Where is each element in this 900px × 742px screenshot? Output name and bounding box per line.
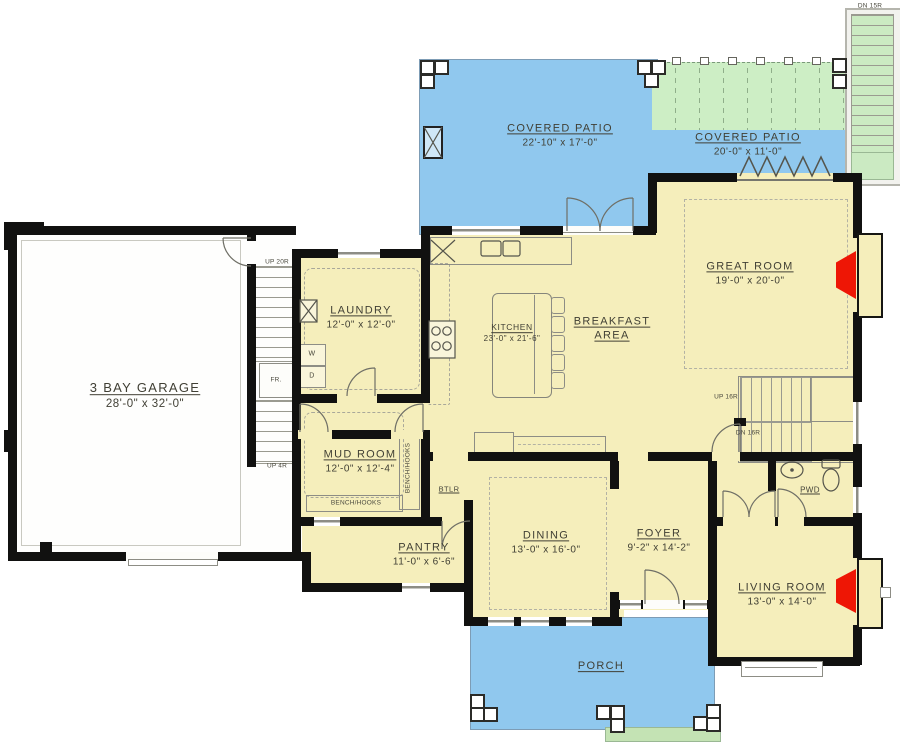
door-opening (391, 430, 423, 439)
sidelite-window (685, 600, 707, 609)
pergola-post (832, 74, 847, 89)
room-dims: 20'-0" x 11'-0" (695, 146, 801, 159)
room-label-great-room: GREAT ROOM 19'-0" x 20'-0" (706, 260, 793, 287)
porch-post (706, 717, 721, 732)
window (853, 402, 862, 444)
wall (648, 452, 860, 461)
foyer-floor (616, 440, 716, 610)
room-name: COVERED PATIO (695, 131, 801, 145)
wall (853, 444, 862, 487)
exterior-fixture (880, 587, 891, 598)
room-name: MUD ROOM (324, 448, 397, 462)
wall (464, 500, 473, 626)
main-stair-up (740, 377, 812, 422)
room-name: 3 BAY GARAGE (90, 380, 201, 396)
pergola-hanger (672, 57, 681, 65)
stair-dn15-label: DN 15R (858, 3, 882, 10)
wall (610, 461, 619, 489)
room-label-pantry: PANTRY 11'-0" x 6'-6" (393, 541, 455, 568)
french-door-opening (723, 517, 775, 526)
patio-post (420, 60, 435, 75)
window (338, 249, 380, 258)
folding-door-track (737, 179, 833, 181)
room-name: PORCH (578, 660, 624, 674)
wall (421, 452, 433, 461)
stair-up4-label: UP 4R (267, 463, 287, 470)
dryer-label: D (309, 373, 314, 380)
wall (247, 233, 256, 241)
island-stool (551, 335, 565, 352)
btlr-label: BTLR (439, 485, 460, 494)
stair-up20-label: UP 20R (265, 259, 289, 266)
wall (292, 249, 301, 525)
room-label-kitchen: KITCHEN 23'-0" x 21'-6" (484, 322, 541, 344)
window (566, 617, 592, 626)
porch-post (483, 707, 498, 722)
window (853, 487, 862, 513)
kitchen-left-counter-dashed (428, 263, 450, 405)
room-name: GREAT ROOM (706, 260, 793, 274)
wall (853, 513, 862, 558)
room-dims: 19'-0" x 20'-0" (706, 275, 793, 288)
living-bay-window-line (745, 667, 817, 668)
wall (734, 418, 746, 426)
garage-door-panel (128, 559, 218, 566)
stair-up16-label: UP 16R (714, 394, 738, 401)
island-stool (551, 372, 565, 389)
living-bay-window (741, 661, 823, 677)
wall (247, 264, 256, 467)
window (314, 517, 340, 526)
front-door-opening (643, 600, 683, 609)
porch-post (596, 705, 611, 720)
room-name: KITCHEN (484, 322, 541, 333)
wall (853, 312, 862, 402)
door-opening (337, 394, 377, 403)
garage-stair-lower (255, 400, 297, 464)
room-dims: 13'-0" x 14'-0" (738, 596, 826, 609)
kitchen-island (492, 293, 552, 398)
wall (421, 249, 430, 403)
island-stool (551, 297, 565, 314)
buffet-dash-line (518, 444, 600, 445)
room-dims: 22'-10" x 17'-0" (507, 137, 613, 150)
pergola-hanger (728, 57, 737, 65)
room-dims: 12'-0" x 12'-0" (326, 319, 395, 332)
window (488, 617, 514, 626)
room-label-living-room: LIVING ROOM 13'-0" x 14'-0" (738, 581, 826, 608)
room-label-laundry: LAUNDRY 12'-0" x 12'-0" (326, 304, 395, 331)
room-name: DINING (511, 529, 580, 543)
pergola-hanger (700, 57, 709, 65)
wall (4, 430, 14, 452)
pergola-hanger (784, 57, 793, 65)
floor-plan: 3 BAY GARAGE 28'-0" x 32'-0" LAUNDRY 12'… (0, 0, 900, 742)
pergola-hanger (812, 57, 821, 65)
patio-post (434, 60, 449, 75)
wall (302, 583, 472, 592)
great-room-bay (857, 233, 883, 318)
wall (768, 461, 776, 491)
wall (833, 173, 862, 182)
window (521, 617, 549, 626)
patio-door-opening (563, 226, 633, 235)
wall (648, 173, 657, 233)
room-dims: 12'-0" x 12'-4" (324, 463, 397, 476)
room-label-foyer: FOYER 9'-2" x 14'-2" (628, 527, 691, 554)
washer-label: W (308, 351, 315, 358)
wall (8, 226, 17, 561)
fridge-label: FR. (270, 377, 281, 384)
patio-door-threshold (563, 232, 633, 233)
room-label-covered-patio-2: COVERED PATIO 20'-0" x 11'-0" (695, 131, 801, 158)
room-dims: 9'-2" x 14'-2" (628, 542, 691, 555)
room-dims: 23'-0" x 21'-6" (484, 334, 541, 344)
room-dims: 11'-0" x 6'-6" (393, 556, 455, 569)
room-name: LAUNDRY (326, 304, 395, 318)
pwd-door-opening (778, 517, 804, 526)
wall (708, 461, 717, 665)
wall (421, 430, 430, 526)
patio-post (420, 74, 435, 89)
pergola-hanger (756, 57, 765, 65)
window (452, 226, 520, 235)
main-stair-landing (810, 377, 858, 422)
room-label-breakfast: BREAKFAST AREA (568, 316, 656, 345)
window (402, 583, 430, 592)
pwd-label: PWD (800, 486, 820, 495)
room-label-porch: PORCH (578, 660, 624, 674)
room-dims: 13'-0" x 16'-0" (511, 544, 580, 557)
room-name: FOYER (628, 527, 691, 541)
room-name: LIVING ROOM (738, 581, 826, 595)
wall (40, 542, 52, 556)
room-name: PANTRY (393, 541, 455, 555)
porch-post (610, 718, 625, 733)
patio-post (644, 73, 659, 88)
room-label-mudroom: MUD ROOM 12'-0" x 12'-4" (324, 448, 397, 475)
bench-hooks-bottom-label: BENCH/HOOKS (331, 500, 381, 507)
outdoor-stair-treads (851, 14, 894, 154)
island-divider (534, 295, 535, 394)
understair-door-opening (712, 452, 740, 461)
wall (468, 452, 618, 461)
room-label-dining: DINING 13'-0" x 16'-0" (511, 529, 580, 556)
pergola-area (652, 62, 845, 131)
island-stool (551, 354, 565, 371)
island-stool (551, 316, 565, 333)
room-name: COVERED PATIO (507, 122, 613, 136)
bench-hooks-side-label: BENCH/HOOKS (405, 443, 412, 493)
kitchen-top-counter (430, 237, 572, 265)
room-name: BREAKFAST AREA (568, 316, 656, 344)
room-label-garage: 3 BAY GARAGE 28'-0" x 32'-0" (90, 380, 201, 412)
room-dims: 28'-0" x 32'-0" (90, 397, 201, 411)
sidelite-window (620, 600, 641, 609)
wall (648, 173, 737, 182)
wall (853, 182, 862, 238)
garage-stair-up (255, 266, 297, 362)
pergola-post (832, 58, 847, 73)
room-label-covered-patio-1: COVERED PATIO 22'-10" x 17'-0" (507, 122, 613, 149)
wall (292, 517, 301, 561)
door-opening (298, 430, 332, 439)
stair-dn16-label: DN 16R (736, 430, 760, 437)
